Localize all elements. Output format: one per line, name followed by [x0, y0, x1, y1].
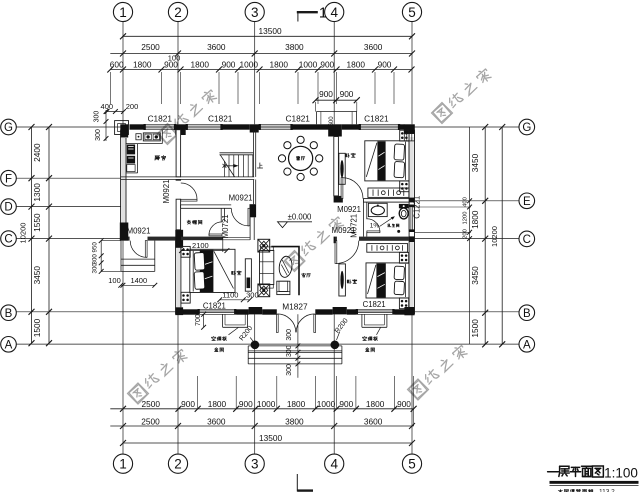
svg-text:C: C — [4, 234, 12, 246]
svg-text:113.2: 113.2 — [599, 489, 615, 492]
svg-text:B: B — [5, 308, 13, 320]
svg-text:2400: 2400 — [32, 143, 42, 162]
svg-text:13500: 13500 — [259, 433, 282, 443]
svg-text:2: 2 — [174, 5, 182, 20]
svg-text:B: B — [523, 308, 531, 320]
svg-text:400: 400 — [463, 197, 469, 207]
svg-text:600: 600 — [110, 59, 124, 69]
svg-text:F: F — [5, 173, 12, 185]
svg-text:1800: 1800 — [270, 59, 289, 69]
svg-text:G: G — [4, 122, 13, 134]
svg-text:D: D — [4, 202, 12, 214]
svg-text:3450: 3450 — [470, 266, 480, 285]
svg-text:3: 3 — [251, 456, 259, 471]
svg-text:3600: 3600 — [364, 416, 383, 426]
svg-text:100: 100 — [108, 276, 121, 285]
svg-text:10200: 10200 — [19, 223, 28, 244]
svg-text:M0921: M0921 — [127, 226, 151, 235]
svg-text:300: 300 — [246, 290, 259, 299]
svg-text:1100: 1100 — [222, 290, 238, 299]
svg-text:C1821: C1821 — [203, 301, 226, 310]
svg-text:1: 1 — [119, 456, 127, 471]
svg-text:5: 5 — [408, 456, 416, 471]
svg-text:300: 300 — [94, 111, 101, 123]
svg-text:1: 1 — [319, 5, 327, 22]
svg-text:400: 400 — [101, 102, 114, 111]
svg-text:2100: 2100 — [192, 241, 209, 250]
svg-text:900: 900 — [222, 59, 236, 69]
svg-text:1800: 1800 — [191, 59, 210, 69]
svg-text:1800: 1800 — [133, 59, 152, 69]
svg-text:M1827: M1827 — [282, 301, 308, 311]
svg-text:1300: 1300 — [32, 183, 42, 202]
svg-text:300: 300 — [286, 329, 293, 341]
svg-text:900: 900 — [320, 59, 334, 69]
svg-text:3800: 3800 — [285, 42, 304, 52]
svg-text:1: 1 — [119, 5, 127, 20]
svg-text:300: 300 — [95, 129, 102, 141]
svg-text:2500: 2500 — [142, 399, 161, 409]
svg-text:M0921: M0921 — [332, 226, 356, 235]
svg-text:4: 4 — [330, 456, 338, 471]
svg-text:950: 950 — [91, 242, 98, 253]
svg-text:13500: 13500 — [259, 26, 282, 36]
svg-text:M0921: M0921 — [162, 180, 171, 204]
svg-text:900: 900 — [378, 59, 392, 69]
svg-text:900: 900 — [339, 399, 353, 409]
svg-text:A: A — [523, 339, 531, 351]
svg-text:3800: 3800 — [285, 416, 304, 426]
svg-text:1:100: 1:100 — [604, 466, 638, 481]
svg-text:900: 900 — [340, 89, 354, 99]
svg-text:300: 300 — [286, 345, 293, 357]
svg-text:E: E — [523, 196, 531, 208]
svg-text:M0921: M0921 — [337, 205, 361, 214]
svg-text:3600: 3600 — [364, 42, 383, 52]
svg-text:200: 200 — [463, 229, 469, 239]
svg-text:3600: 3600 — [207, 416, 226, 426]
svg-text:5: 5 — [408, 5, 416, 20]
svg-text:900: 900 — [181, 399, 195, 409]
svg-text:3450: 3450 — [470, 153, 480, 172]
svg-text:C: C — [523, 234, 531, 246]
svg-text:4: 4 — [330, 5, 338, 20]
svg-text:3600: 3600 — [207, 42, 226, 52]
svg-text:C1821: C1821 — [364, 113, 389, 123]
svg-text:1400: 1400 — [130, 276, 147, 285]
svg-text:C1221: C1221 — [413, 196, 422, 219]
svg-text:G: G — [522, 122, 531, 134]
svg-text:300: 300 — [286, 364, 293, 376]
svg-text:1550: 1550 — [32, 213, 42, 232]
svg-text:1800: 1800 — [470, 210, 480, 229]
svg-text:1200: 1200 — [463, 212, 469, 225]
svg-text:1800: 1800 — [208, 399, 227, 409]
svg-text:1500: 1500 — [470, 319, 480, 338]
svg-text:1000: 1000 — [257, 399, 276, 409]
svg-text:1800: 1800 — [287, 399, 306, 409]
svg-text:M0721: M0721 — [221, 214, 230, 238]
svg-text:M0921: M0921 — [229, 194, 253, 203]
svg-text:1000: 1000 — [240, 59, 259, 69]
svg-text:3: 3 — [251, 5, 259, 20]
svg-text:C1821: C1821 — [148, 113, 173, 123]
svg-text:2: 2 — [174, 456, 182, 471]
svg-text:900: 900 — [397, 399, 411, 409]
svg-text:100: 100 — [168, 54, 181, 63]
svg-text:2500: 2500 — [141, 42, 160, 52]
svg-text:1800: 1800 — [366, 399, 385, 409]
svg-text:C1821: C1821 — [363, 300, 386, 309]
svg-text:10200: 10200 — [490, 226, 499, 247]
svg-text:3450: 3450 — [32, 266, 42, 285]
svg-text:2500: 2500 — [141, 416, 160, 426]
svg-text:C1821: C1821 — [208, 113, 233, 123]
svg-text:300: 300 — [91, 254, 98, 265]
svg-text:1500: 1500 — [32, 318, 42, 337]
svg-text:700: 700 — [195, 314, 202, 326]
svg-text:900: 900 — [239, 399, 253, 409]
svg-text:1800: 1800 — [347, 59, 366, 69]
svg-text:±0.000: ±0.000 — [288, 213, 312, 222]
svg-text:300: 300 — [91, 263, 98, 274]
svg-text:A: A — [5, 339, 13, 351]
svg-text:C1821: C1821 — [285, 113, 310, 123]
svg-text:1000: 1000 — [299, 59, 318, 69]
svg-text:1000: 1000 — [317, 399, 336, 409]
svg-text:900: 900 — [319, 89, 333, 99]
svg-text:200: 200 — [126, 102, 139, 111]
svg-text:1%: 1% — [370, 223, 380, 230]
